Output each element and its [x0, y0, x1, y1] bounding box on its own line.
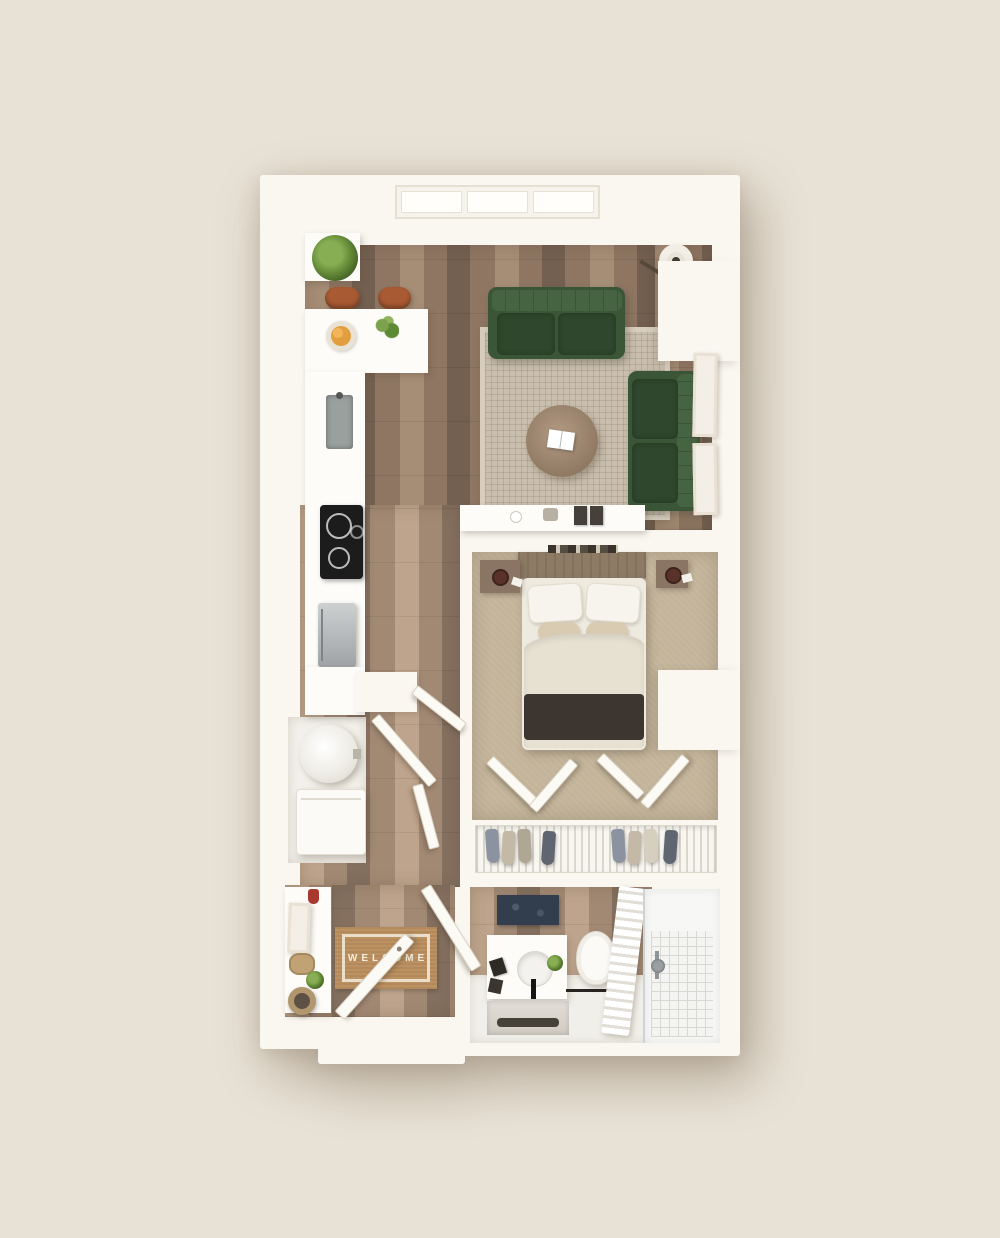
wall-art-frame [692, 353, 717, 437]
throw-blanket [524, 694, 644, 740]
toilet-paper-holder [566, 989, 610, 992]
apartment-unit: WELCOME [260, 175, 740, 1065]
kitchen-island [305, 309, 428, 373]
burner [326, 513, 352, 539]
framed-photo [574, 506, 587, 525]
nightstand [656, 560, 688, 588]
loveseat-seat-cushion [632, 379, 678, 439]
loveseat [628, 371, 700, 511]
bedroom-wall-jog [658, 670, 740, 750]
refrigerator-handle [321, 609, 323, 661]
sofa-seat-cushion [558, 313, 616, 355]
cooktop [320, 505, 363, 579]
window-pane [401, 191, 462, 213]
hanging-garment [627, 831, 642, 866]
potted-plant [312, 235, 358, 281]
hanging-garment [611, 829, 626, 864]
living-room-window [395, 185, 600, 219]
refrigerator [318, 603, 356, 667]
shower-valve [651, 959, 665, 973]
oranges [331, 326, 351, 346]
bar-stool [325, 287, 360, 309]
hanging-garment [501, 831, 516, 866]
hanging-garment [643, 829, 658, 864]
pillow [585, 582, 642, 624]
sofa-back-cushions [491, 290, 622, 311]
console-decor [543, 508, 558, 521]
hall-wall-stub [355, 672, 417, 712]
vanity-tray [489, 957, 507, 977]
fruit-bowl [326, 321, 356, 351]
red-decor [308, 889, 319, 904]
window-pane [533, 191, 594, 213]
bed [522, 578, 646, 750]
leaning-mirror [287, 903, 311, 954]
wall-art-frame [692, 443, 717, 515]
bar-stool [378, 287, 411, 309]
coffee-table [526, 405, 598, 477]
washer-dryer [296, 789, 366, 855]
window-pane [467, 191, 528, 213]
entry-console [285, 887, 331, 1013]
nightstand [480, 560, 520, 593]
tub-shower [643, 889, 720, 1043]
kitchen-sink [326, 395, 353, 449]
vanity-soap [488, 978, 504, 994]
hanging-garment [541, 831, 556, 866]
hanging-garment [663, 830, 678, 865]
wall-alcove [658, 261, 740, 361]
unit-slab-bump-entry [318, 1047, 465, 1064]
magazine [547, 429, 575, 450]
floor-plan-render: WELCOME [0, 0, 1000, 1238]
table-lamp [492, 569, 509, 586]
burner [350, 525, 364, 539]
water-heater-valve [353, 749, 361, 759]
headboard-books [548, 545, 618, 553]
burner [328, 547, 350, 569]
framed-photo [590, 506, 603, 525]
hanging-garment [485, 829, 500, 864]
table-lamp [665, 567, 682, 584]
washer-seam [301, 798, 361, 800]
unit-slab-bump-bath [463, 1041, 740, 1056]
media-console [460, 505, 645, 531]
pillow [527, 582, 584, 624]
vanity-mirror-reflection [487, 1001, 569, 1035]
vanity-faucet [531, 979, 536, 999]
bed-headboard [518, 552, 646, 578]
loveseat-seat-cushion [632, 443, 678, 503]
vanity-plant [547, 955, 563, 971]
hanging-garment [517, 829, 532, 864]
island-plant-sprig [375, 315, 399, 341]
sofa-seat-cushion [497, 313, 555, 355]
bath-mat [497, 895, 559, 925]
bathroom-vanity [487, 935, 567, 999]
door-handle [396, 945, 403, 952]
kitchen-faucet [336, 392, 343, 399]
water-heater [300, 725, 358, 783]
console-dish [510, 511, 522, 523]
shower-tile-floor [651, 931, 713, 1037]
towel-bar [497, 1018, 559, 1027]
entry-plant [306, 971, 324, 989]
sofa [488, 287, 625, 359]
round-basket [288, 987, 316, 1015]
